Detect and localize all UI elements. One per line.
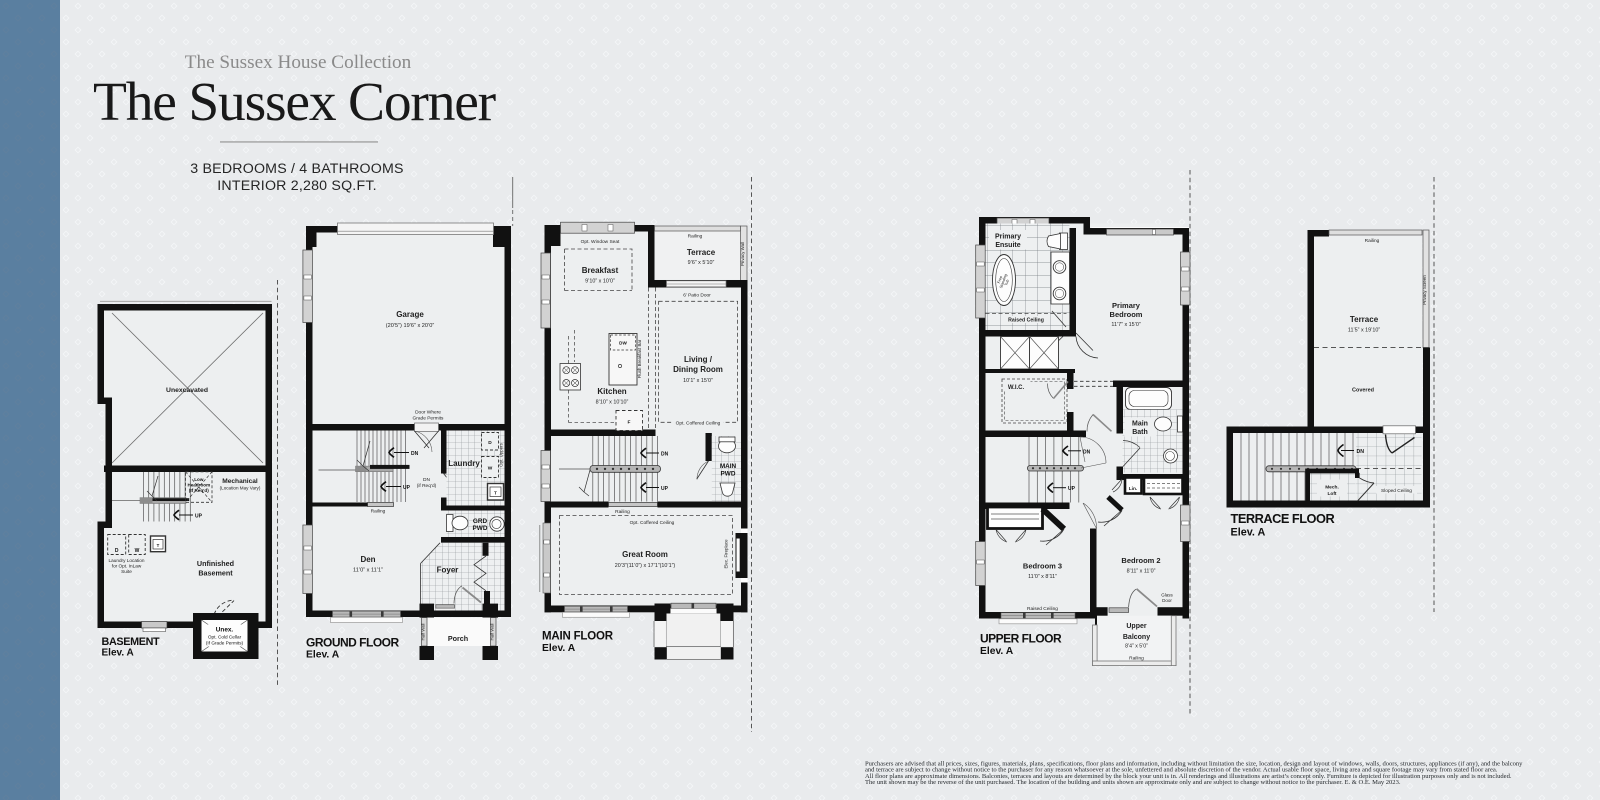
svg-text:6’ Patio Door: 6’ Patio Door [683, 293, 711, 299]
svg-text:8’4” x 5’0”: 8’4” x 5’0” [1125, 644, 1148, 650]
svg-text:UPPER FLOOR: UPPER FLOOR [980, 632, 1062, 646]
svg-text:Elev. A: Elev. A [1231, 527, 1266, 539]
svg-text:Half Wall: Half Wall [421, 623, 426, 640]
svg-text:The unit shown may be the reve: The unit shown may be the reverse of the… [865, 779, 1401, 786]
svg-text:DN: DN [1083, 449, 1091, 455]
svg-text:W: W [488, 466, 493, 472]
svg-text:Lin.: Lin. [1129, 486, 1138, 492]
svg-text:Flush Breakfast Bar: Flush Breakfast Bar [637, 339, 642, 378]
svg-text:Unfinished: Unfinished [197, 559, 234, 568]
svg-text:Elev. A: Elev. A [306, 650, 340, 661]
svg-text:Main: Main [1132, 421, 1148, 428]
svg-text:(if Req’d): (if Req’d) [417, 483, 437, 489]
svg-text:Foyer: Foyer [437, 566, 459, 575]
svg-text:Bedroom: Bedroom [1110, 310, 1143, 319]
svg-text:9’10” x 10’0”: 9’10” x 10’0” [585, 279, 615, 285]
svg-text:Unex.: Unex. [216, 627, 234, 634]
svg-text:PWD: PWD [473, 525, 488, 532]
svg-text:8’11” x 11’0”: 8’11” x 11’0” [1127, 569, 1156, 575]
svg-text:T: T [494, 491, 497, 496]
svg-text:DN: DN [411, 451, 419, 457]
svg-text:Balcony: Balcony [1123, 634, 1150, 641]
svg-text:MAIN FLOOR: MAIN FLOOR [542, 631, 614, 643]
svg-text:Railing: Railing [1129, 656, 1144, 662]
svg-text:Terrace: Terrace [687, 248, 716, 257]
svg-text:10’1” x 15’0”: 10’1” x 15’0” [683, 378, 713, 384]
svg-text:Railing: Railing [615, 509, 630, 515]
svg-text:11’7” x 15’0”: 11’7” x 15’0” [1111, 322, 1140, 328]
svg-text:Low: Low [194, 477, 204, 482]
svg-text:Railing: Railing [1365, 238, 1380, 244]
svg-text:Terrace: Terrace [1350, 315, 1379, 324]
svg-text:PWD: PWD [721, 471, 736, 478]
svg-text:Opt. Cold Cellar: Opt. Cold Cellar [208, 635, 242, 640]
svg-text:W: W [135, 548, 140, 554]
svg-text:Door Where: Door Where [415, 410, 441, 416]
svg-text:Opt. Window Seat: Opt. Window Seat [581, 239, 620, 245]
svg-text:Raised Ceiling: Raised Ceiling [1027, 606, 1058, 612]
svg-text:MAIN: MAIN [720, 463, 737, 470]
svg-text:11’0” x 8’11”: 11’0” x 8’11” [1028, 574, 1057, 580]
svg-text:Laundry: Laundry [448, 459, 480, 468]
svg-text:Den: Den [360, 555, 375, 564]
svg-text:Mech.: Mech. [1325, 485, 1339, 491]
svg-text:GRD: GRD [473, 518, 488, 525]
svg-text:Sloped Ceiling: Sloped Ceiling [1381, 488, 1412, 494]
svg-text:Elec. Fireplace: Elec. Fireplace [724, 539, 729, 569]
svg-text:3 BEDROOMS / 4 BATHROOMS: 3 BEDROOMS / 4 BATHROOMS [190, 161, 403, 177]
svg-text:Headroom: Headroom [187, 483, 210, 488]
svg-text:Elev. A: Elev. A [102, 648, 134, 659]
svg-text:The Sussex House Collection: The Sussex House Collection [185, 52, 412, 73]
svg-text:Half Wall: Half Wall [490, 623, 495, 640]
svg-text:(Location May Vary): (Location May Vary) [220, 486, 261, 491]
svg-text:Opt. Uppers: Opt. Uppers [499, 442, 504, 466]
svg-text:Door: Door [1162, 598, 1172, 603]
svg-text:Bedroom 3: Bedroom 3 [1023, 562, 1062, 571]
svg-text:Opt. Coffered Ceiling: Opt. Coffered Ceiling [676, 421, 721, 427]
svg-text:11’5” x 19’10”: 11’5” x 19’10” [1348, 328, 1380, 334]
svg-text:(20’5”) 19’6” x 20’0”: (20’5”) 19’6” x 20’0” [386, 323, 435, 329]
svg-text:Opt. Coffered Ceiling: Opt. Coffered Ceiling [630, 520, 675, 526]
svg-text:Ensuite: Ensuite [995, 242, 1020, 249]
svg-text:BASEMENT: BASEMENT [102, 636, 161, 648]
svg-text:Privacy Screen: Privacy Screen [1422, 275, 1427, 305]
svg-text:20’3”(11’0”) x 17’1”(10’1”): 20’3”(11’0”) x 17’1”(10’1”) [615, 563, 676, 569]
svg-text:DN: DN [1357, 449, 1365, 455]
svg-text:Primary: Primary [1112, 301, 1141, 310]
svg-text:Bath: Bath [1132, 429, 1148, 436]
svg-text:Living /: Living / [684, 355, 713, 364]
svg-text:Mechanical: Mechanical [222, 478, 258, 485]
svg-text:(If Grade Permits): (If Grade Permits) [206, 640, 244, 645]
svg-text:GROUND FLOOR: GROUND FLOOR [306, 636, 399, 650]
svg-text:UP: UP [1068, 486, 1076, 492]
svg-text:DN: DN [661, 452, 669, 458]
svg-text:Privacy Wall: Privacy Wall [740, 242, 745, 266]
svg-text:11’0” x 11’1”: 11’0” x 11’1” [353, 568, 383, 574]
svg-text:Bedroom 2: Bedroom 2 [1121, 556, 1160, 565]
svg-text:INTERIOR 2,280 SQ.FT.: INTERIOR 2,280 SQ.FT. [217, 178, 377, 194]
svg-text:8’10” x 10’10”: 8’10” x 10’10” [596, 400, 629, 406]
svg-text:Garage: Garage [396, 310, 424, 319]
svg-text:Porch: Porch [448, 634, 468, 643]
svg-text:The Sussex Corner: The Sussex Corner [93, 72, 496, 133]
svg-text:Unexcavated: Unexcavated [166, 387, 208, 394]
svg-text:Breakfast: Breakfast [582, 266, 619, 275]
svg-text:UP: UP [661, 486, 669, 492]
svg-text:(If Req’d): (If Req’d) [189, 488, 209, 493]
svg-text:Railing: Railing [371, 509, 386, 515]
svg-text:Railing: Railing [688, 234, 703, 240]
svg-text:Laundry Location: Laundry Location [109, 558, 145, 563]
svg-text:Great Room: Great Room [622, 550, 668, 559]
svg-text:F: F [628, 420, 631, 426]
svg-text:DN: DN [423, 477, 430, 483]
svg-text:DW: DW [619, 341, 627, 346]
svg-text:Elev. A: Elev. A [980, 646, 1014, 657]
svg-text:Kitchen: Kitchen [597, 387, 626, 396]
svg-text:Loft: Loft [1327, 491, 1336, 497]
svg-text:Glass: Glass [1161, 593, 1173, 598]
svg-text:D: D [488, 440, 492, 446]
svg-text:Suite: Suite [121, 569, 132, 574]
svg-text:9’6” x 5’10”: 9’6” x 5’10” [688, 260, 715, 266]
svg-text:D: D [115, 548, 119, 554]
svg-text:Grade Permits: Grade Permits [413, 416, 445, 422]
svg-text:Upper: Upper [1126, 623, 1147, 630]
svg-text:Covered: Covered [1352, 388, 1374, 394]
svg-text:UP: UP [403, 485, 411, 491]
svg-text:T: T [157, 543, 160, 548]
svg-text:Basement: Basement [198, 569, 233, 578]
svg-text:Raised Ceiling: Raised Ceiling [1008, 318, 1044, 324]
svg-text:TERRACE FLOOR: TERRACE FLOOR [1231, 511, 1335, 526]
svg-text:Dining Room: Dining Room [673, 365, 723, 374]
svg-text:UP: UP [195, 513, 203, 519]
svg-text:Elev. A: Elev. A [542, 643, 576, 654]
svg-text:for Opt. InLaw: for Opt. InLaw [112, 564, 142, 569]
svg-text:Primary: Primary [995, 234, 1021, 241]
svg-text:W.I.C.: W.I.C. [1008, 385, 1025, 391]
